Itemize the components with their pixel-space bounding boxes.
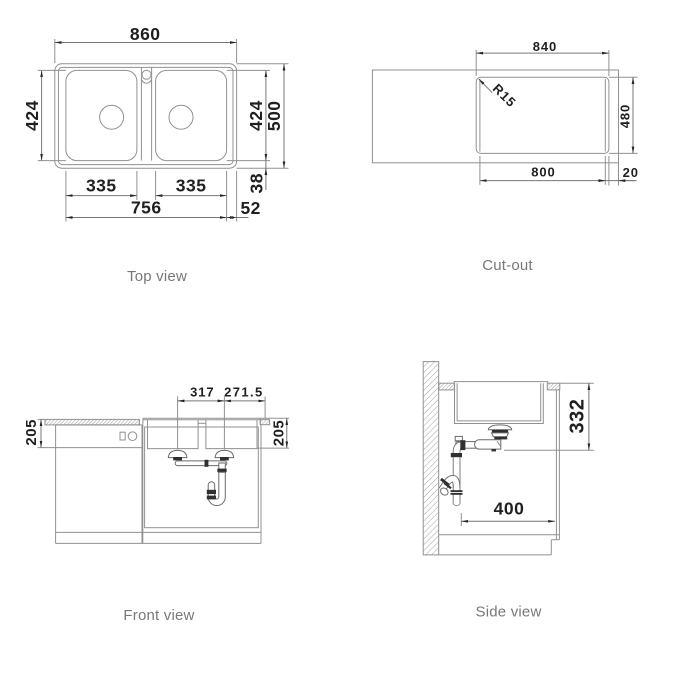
svg-text:20: 20 — [623, 165, 639, 180]
svg-text:400: 400 — [494, 499, 525, 519]
svg-text:500: 500 — [264, 100, 284, 131]
svg-text:335: 335 — [176, 175, 207, 195]
svg-text:52: 52 — [240, 198, 260, 218]
svg-text:332: 332 — [566, 399, 588, 434]
svg-text:480: 480 — [617, 104, 632, 128]
svg-text:205: 205 — [23, 419, 40, 446]
svg-text:800: 800 — [531, 164, 555, 179]
svg-text:271.5: 271.5 — [224, 385, 264, 400]
svg-text:Side view: Side view — [476, 604, 542, 621]
svg-text:756: 756 — [131, 197, 162, 217]
svg-text:840: 840 — [533, 39, 557, 54]
svg-text:38: 38 — [246, 173, 266, 193]
svg-text:317: 317 — [190, 385, 214, 400]
svg-text:860: 860 — [130, 24, 161, 44]
svg-text:Top view: Top view — [127, 268, 187, 285]
svg-text:205: 205 — [270, 420, 287, 447]
svg-text:335: 335 — [86, 175, 117, 195]
svg-text:Front view: Front view — [123, 607, 194, 624]
svg-text:Cut-out: Cut-out — [482, 257, 533, 274]
svg-text:424: 424 — [22, 100, 42, 131]
